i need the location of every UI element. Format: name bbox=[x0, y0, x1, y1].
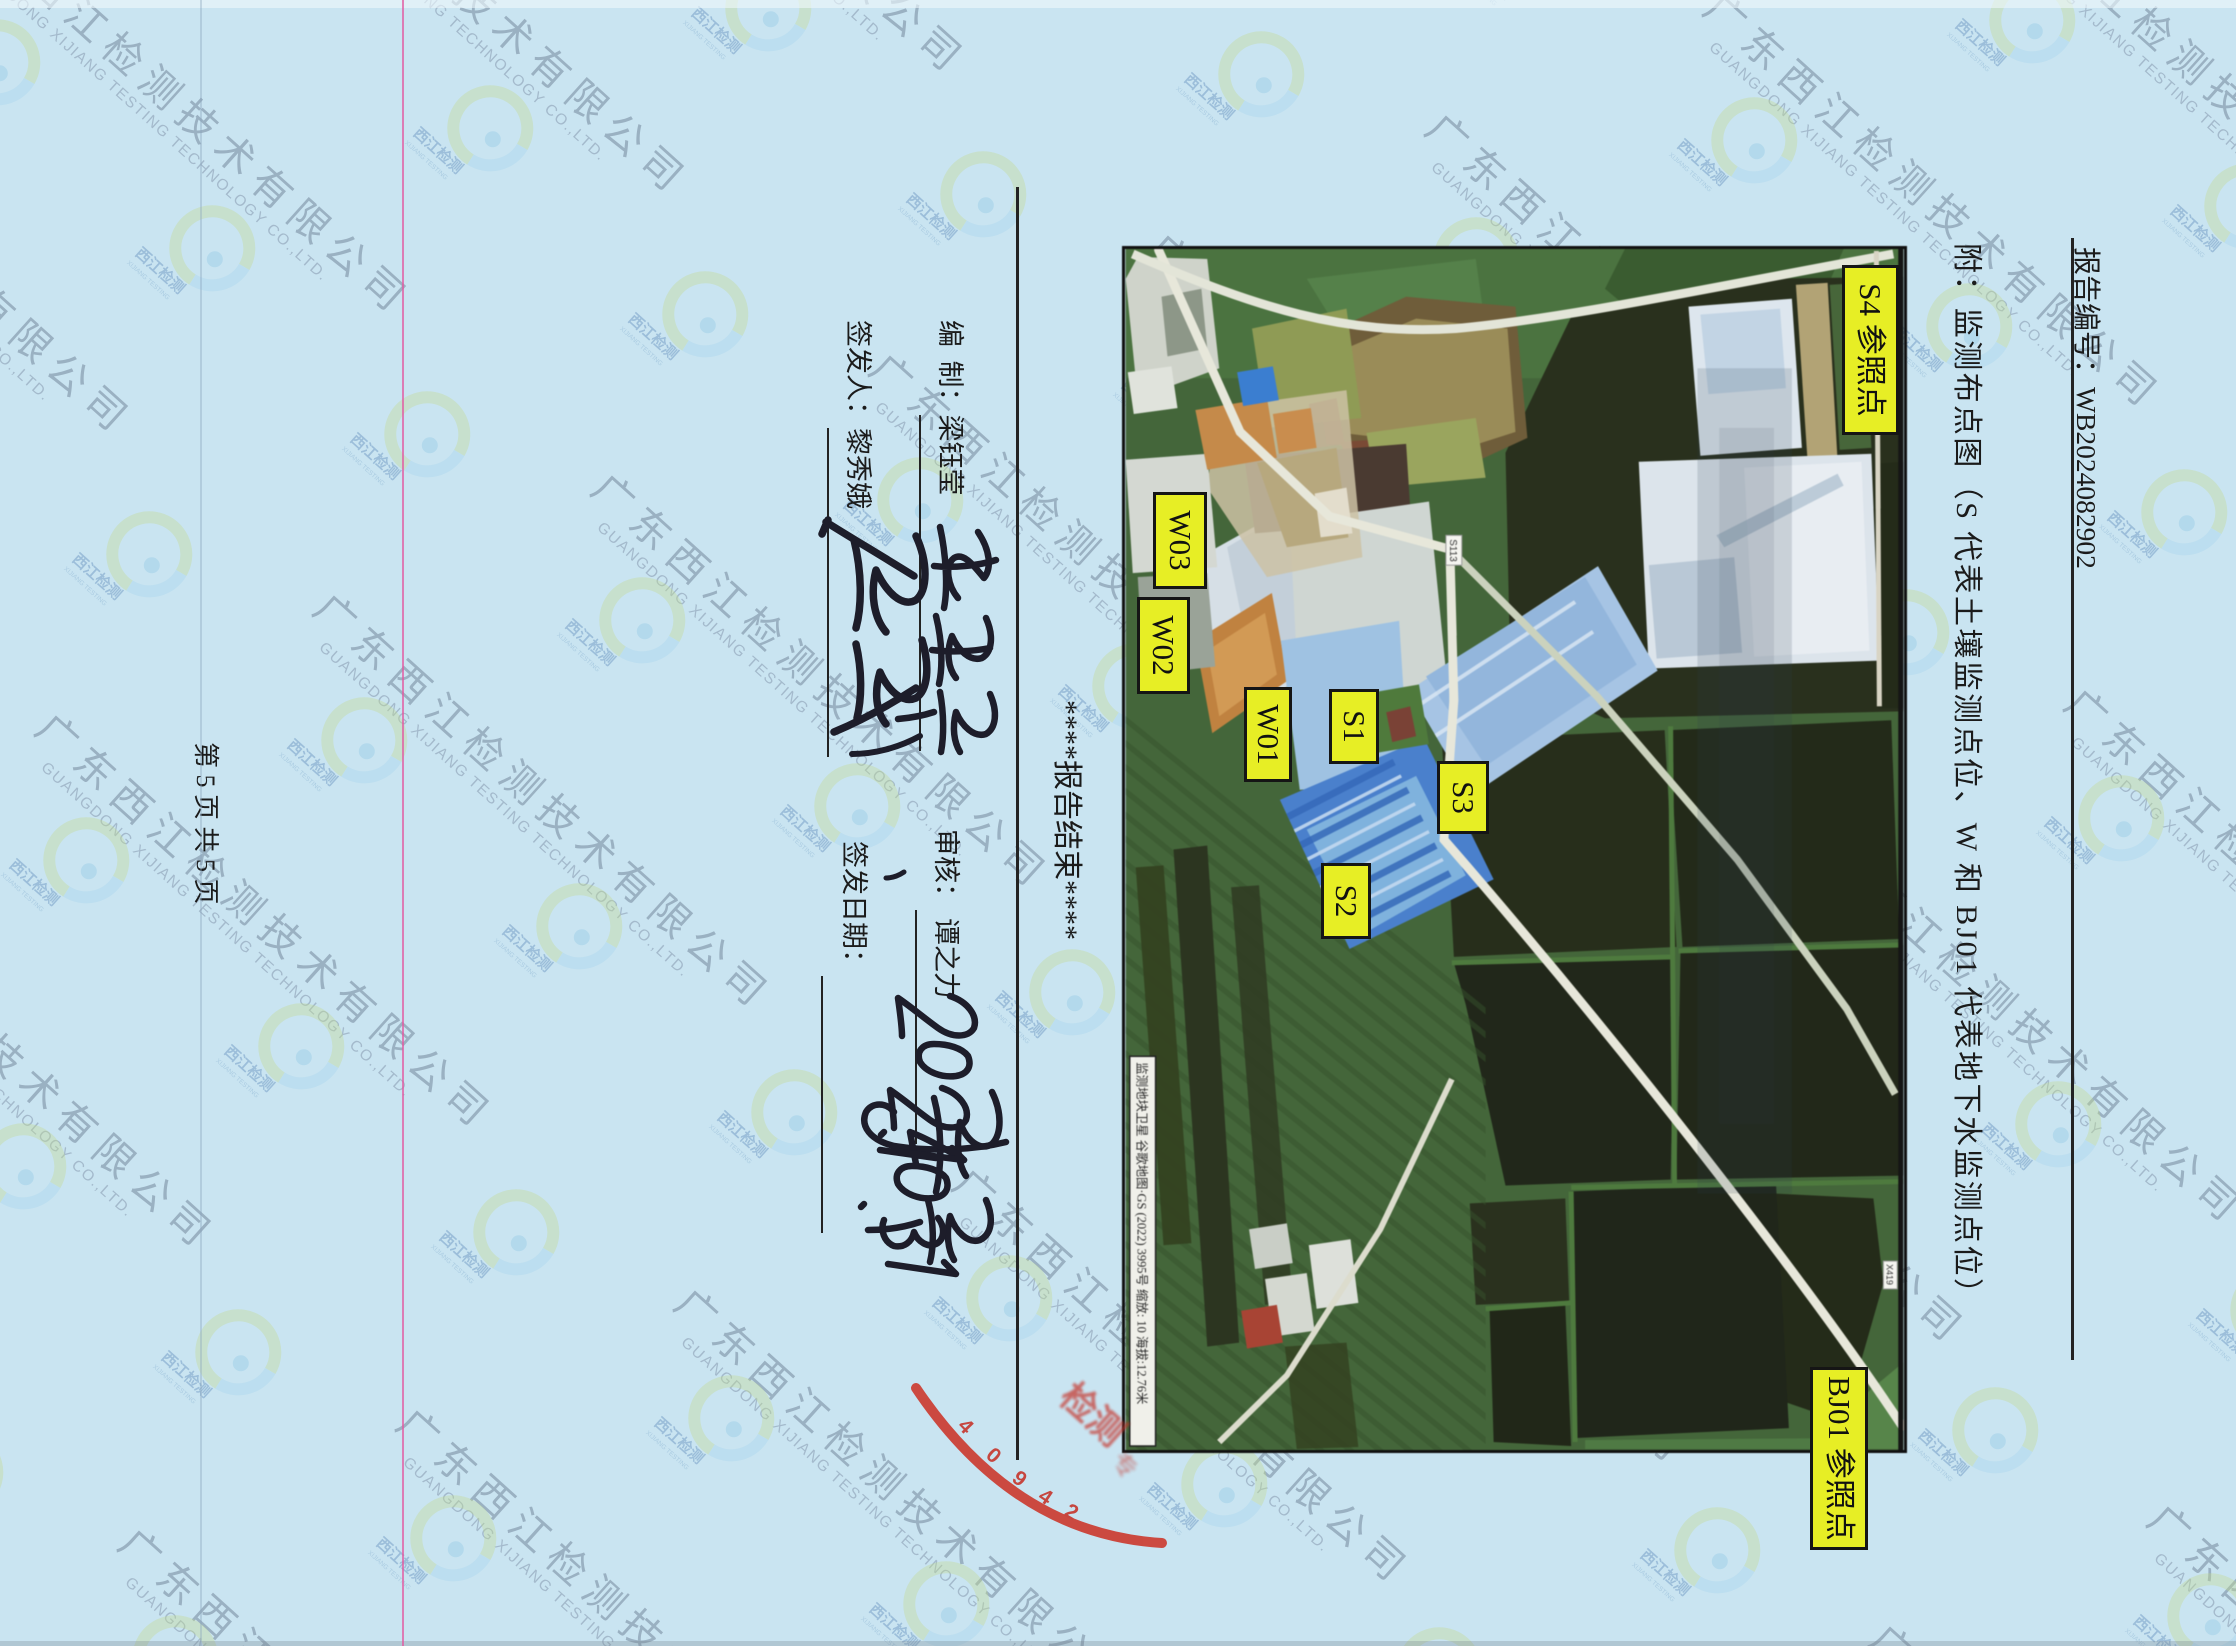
svg-text:专: 专 bbox=[1106, 1448, 1142, 1484]
svg-text:检测: 检测 bbox=[1052, 1376, 1132, 1454]
